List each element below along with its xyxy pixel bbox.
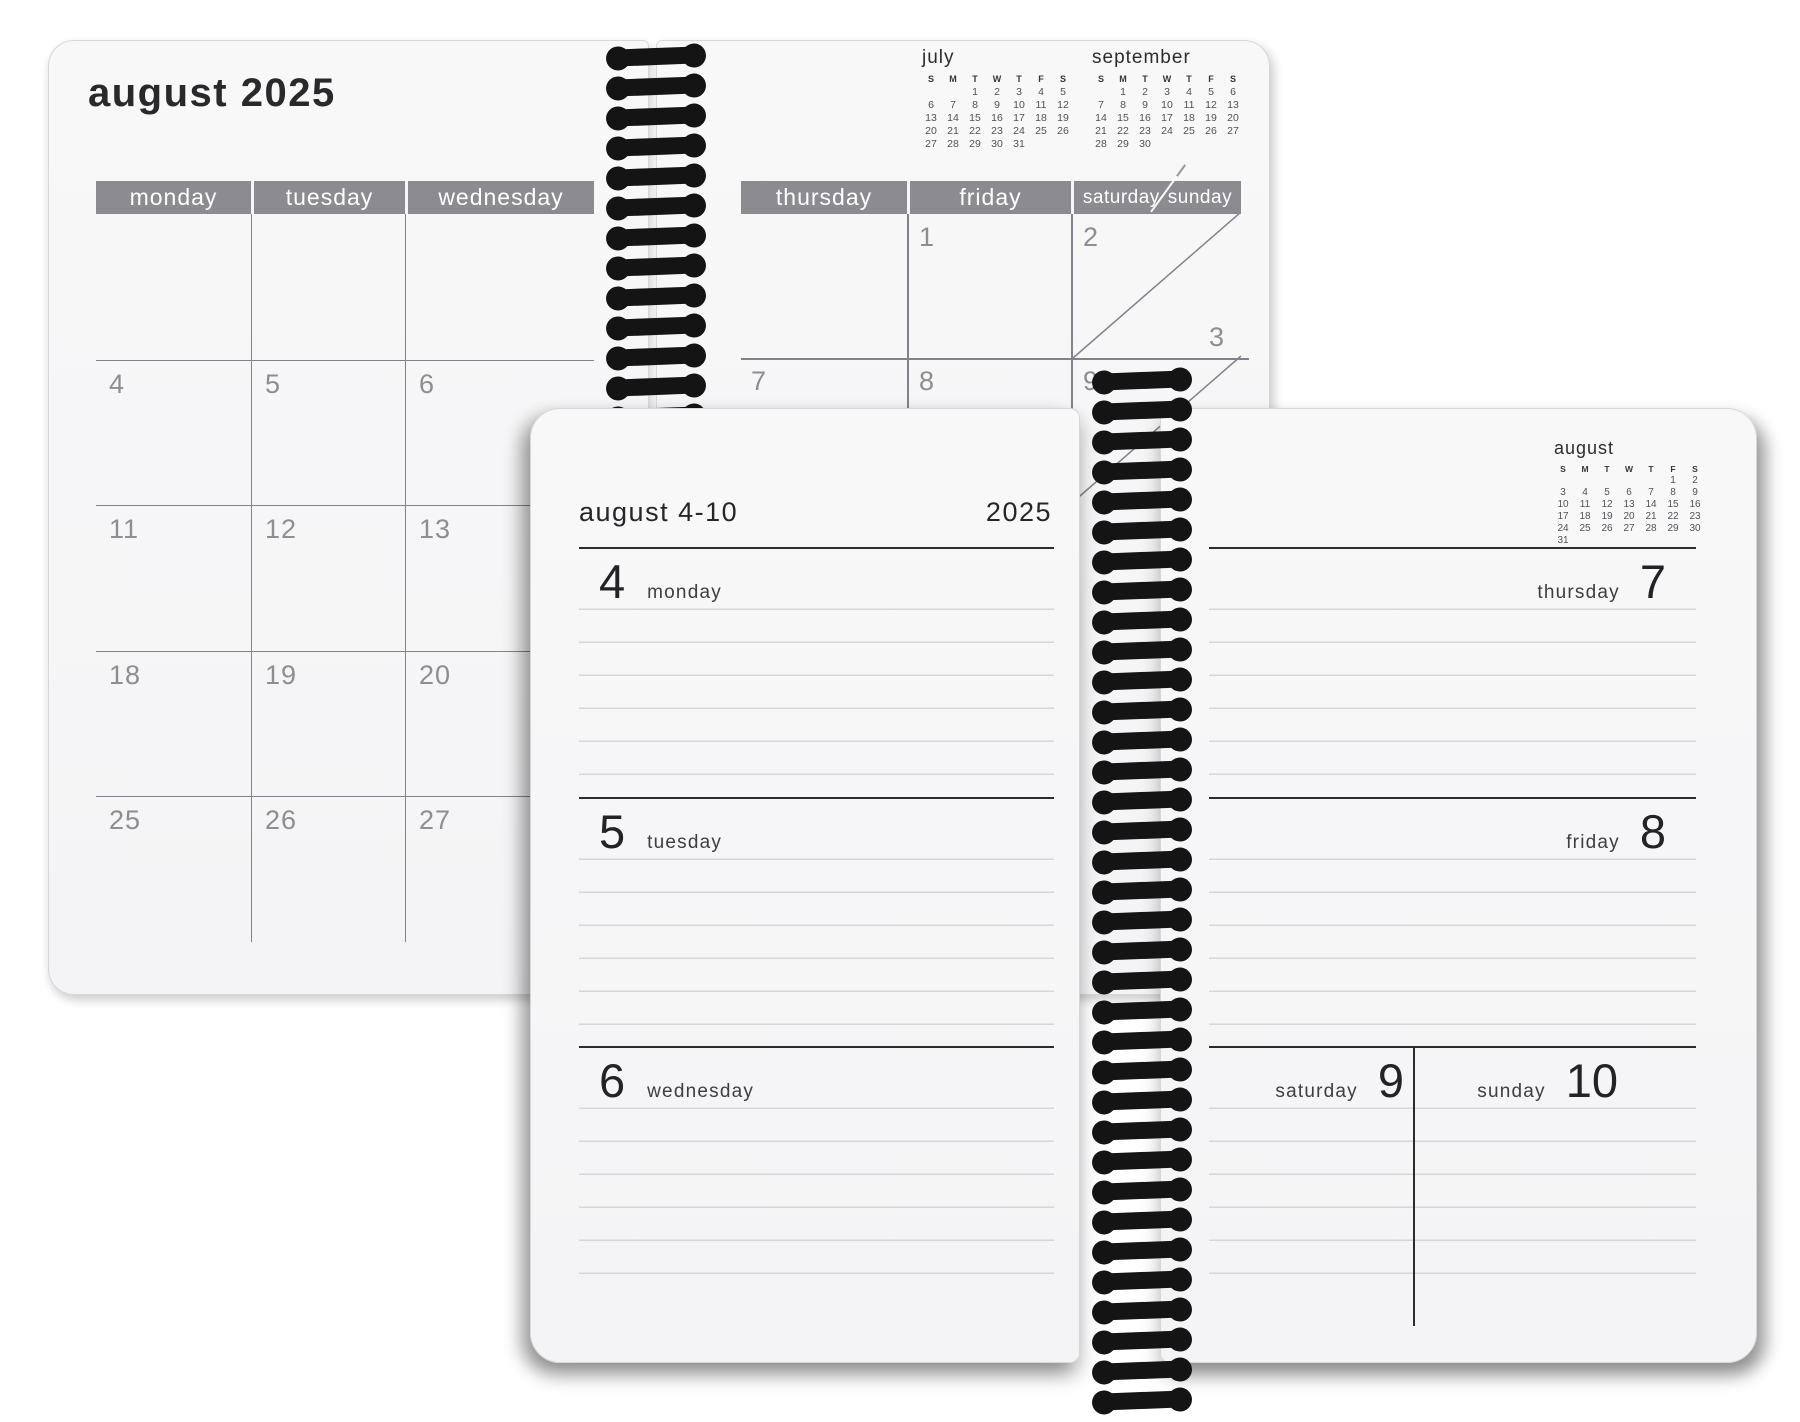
mini-date-cell: 3 <box>1156 86 1178 99</box>
mini-date-cell: 25 <box>1178 125 1200 138</box>
mini-date-cell: 8 <box>1112 99 1134 112</box>
mini-date-cell <box>1222 138 1244 151</box>
mini-date-cell: 16 <box>986 112 1008 125</box>
mini-date-cell: 18 <box>1178 112 1200 125</box>
spiral-coil <box>1096 670 1189 691</box>
month-date-cell: 7 <box>751 366 767 397</box>
mini-date-cell: 19 <box>1200 112 1222 125</box>
mini-date-cell: 28 <box>1090 138 1112 151</box>
month-date-cell <box>405 214 594 360</box>
mini-date-cell: 12 <box>1052 99 1074 112</box>
day-number: 6 <box>599 1053 625 1108</box>
day-heading: saturday 9 <box>1275 1053 1404 1108</box>
mini-date-cell <box>1200 138 1222 151</box>
month-date-cell: 25 <box>96 797 251 942</box>
day-heading: thursday 7 <box>1537 554 1666 609</box>
mini-date-cell <box>942 86 964 99</box>
mini-calendar-title: september <box>1092 47 1244 69</box>
spiral-coil <box>1096 910 1189 931</box>
monthly-title: august 2025 <box>88 71 336 116</box>
mini-date-cell: 15 <box>1112 112 1134 125</box>
mini-day-letter: T <box>1134 73 1156 86</box>
weekend-headings: saturday 9 sunday 10 <box>1209 1048 1696 1108</box>
mini-date-cell: 29 <box>964 138 986 151</box>
monthly-grid-left: mondaytuesdaywednesday 456 111213 181920… <box>96 181 594 942</box>
mini-date-cell: 24 <box>1008 125 1030 138</box>
mini-date-cell: 20 <box>1222 112 1244 125</box>
spiral-coil <box>1096 1210 1189 1231</box>
day-number: 10 <box>1566 1053 1618 1108</box>
spiral-coil <box>1096 520 1189 541</box>
day-number: 7 <box>1640 554 1666 609</box>
spiral-coil <box>1096 790 1189 811</box>
weekday-header-cell: tuesday <box>251 181 405 214</box>
month-row: 252627 <box>96 796 594 942</box>
day-label: tuesday <box>647 832 722 854</box>
mini-date-cell <box>1030 138 1052 151</box>
spiral-coil <box>1096 1360 1189 1381</box>
month-date-cell <box>96 214 251 360</box>
spiral-coil <box>1096 760 1189 781</box>
spiral-coil <box>1096 1330 1189 1351</box>
spiral-coil <box>1096 610 1189 631</box>
spiral-coil <box>1096 1000 1189 1021</box>
spiral-coil <box>1096 1090 1189 1111</box>
spiral-coil <box>1096 1390 1189 1411</box>
day-number: 8 <box>1640 804 1666 859</box>
spiral-binding-weekly <box>1096 372 1188 1422</box>
day-label: sunday <box>1477 1081 1545 1103</box>
month-row: 111213 <box>96 505 594 651</box>
spiral-coil <box>610 346 703 367</box>
mini-date-cell: 13 <box>1222 99 1244 112</box>
mini-date-cell: 22 <box>964 125 986 138</box>
mini-date-cell: 9 <box>986 99 1008 112</box>
month-date-cell <box>251 214 405 360</box>
spiral-coil <box>1096 850 1189 871</box>
mini-date-cell: 27 <box>1222 125 1244 138</box>
mini-date-cell: 5 <box>1200 86 1222 99</box>
mini-date-cell: 13 <box>920 112 942 125</box>
mini-date-cell: 17 <box>1156 112 1178 125</box>
spiral-coil <box>610 136 703 157</box>
day-label: monday <box>647 582 722 604</box>
weekend-section: saturday 9 sunday 10 <box>1209 1046 1696 1274</box>
spiral-coil <box>1096 1030 1189 1051</box>
mini-day-letter: M <box>1112 73 1134 86</box>
weekday-header-cell: thursday <box>741 181 907 214</box>
mini-date-cell: 10 <box>1008 99 1030 112</box>
mini-date-cell: 3 <box>1008 86 1030 99</box>
spiral-coil <box>610 106 703 127</box>
mini-date-cell: 28 <box>942 138 964 151</box>
month-date-cell: 2 <box>1083 222 1099 253</box>
mini-calendar-september: september SMTWTFS 123456 78910111213 141… <box>1090 47 1244 151</box>
planner-photo: august 2025 mondaytuesdaywednesday 456 1… <box>0 0 1800 1414</box>
weekday-header-cell: friday <box>907 181 1071 214</box>
mini-calendar-july: july SMTWTFS 12345 6789101112 1314151617… <box>920 47 1074 151</box>
weekday-header-band: mondaytuesdaywednesday <box>96 181 594 214</box>
mini-date-cell: 21 <box>1090 125 1112 138</box>
weekday-header-band: thursdayfriday saturday sunday <box>741 181 1241 214</box>
mini-date-cell: 9 <box>1134 99 1156 112</box>
day-number: 4 <box>599 554 625 609</box>
spiral-coil <box>1096 1180 1189 1201</box>
mini-date-cell: 31 <box>1008 138 1030 151</box>
mini-date-cell: 26 <box>1200 125 1222 138</box>
mini-date-cell: 16 <box>1134 112 1156 125</box>
month-date-cell: 1 <box>919 222 935 253</box>
spiral-coil <box>1096 1300 1189 1321</box>
day-label: wednesday <box>647 1081 754 1103</box>
mini-date-cell: 11 <box>1178 99 1200 112</box>
day-label: saturday <box>1275 1081 1357 1103</box>
mini-date-cell: 12 <box>1200 99 1222 112</box>
mini-date-cell: 15 <box>964 112 986 125</box>
spiral-coil <box>610 256 703 277</box>
day-heading: 4 monday <box>599 554 722 609</box>
spiral-coil <box>1096 1120 1189 1141</box>
day-section: thursday 7 <box>1209 547 1696 775</box>
month-row: 181920 <box>96 651 594 797</box>
weekly-day-sections: 4 monday 5 tuesday 6 wednesday <box>531 409 1079 1362</box>
mini-day-letter: S <box>1052 73 1074 86</box>
mini-date-cell: 30 <box>1134 138 1156 151</box>
day-label: thursday <box>1537 582 1619 604</box>
spiral-coil <box>1096 370 1189 391</box>
spiral-coil <box>1096 970 1189 991</box>
month-date-cell: 11 <box>96 506 251 651</box>
spiral-coil <box>610 166 703 187</box>
spiral-coil <box>610 196 703 217</box>
mini-date-cell: 8 <box>964 99 986 112</box>
spiral-coil <box>1096 430 1189 451</box>
mini-date-cell: 7 <box>942 99 964 112</box>
weekly-right-page: august SMTWTFS 12 3456789 10111213141516… <box>1160 408 1757 1363</box>
mini-calendar-grid: SMTWTFS 12345 6789101112 13141516171819 … <box>920 73 1074 151</box>
spiral-coil <box>1096 820 1189 841</box>
mini-date-cell: 25 <box>1030 125 1052 138</box>
day-heading: 6 wednesday <box>599 1053 754 1108</box>
mini-calendar-grid: SMTWTFS 123456 78910111213 1415161718192… <box>1090 73 1244 151</box>
weekly-left-page: august 4-10 2025 4 monday 5 tuesday 6 we… <box>530 408 1080 1363</box>
mini-day-letter: S <box>1090 73 1112 86</box>
day-section: 4 monday <box>579 547 1054 775</box>
mini-date-cell: 1 <box>1112 86 1134 99</box>
mini-day-letter: S <box>920 73 942 86</box>
spiral-coil <box>1096 490 1189 511</box>
mini-date-cell: 6 <box>920 99 942 112</box>
month-date-cell: 3 <box>1209 322 1225 353</box>
spiral-coil <box>1096 640 1189 661</box>
mini-day-letter: T <box>1008 73 1030 86</box>
month-date-cell: 19 <box>251 652 405 797</box>
mini-date-cell: 29 <box>1112 138 1134 151</box>
month-date-cell: 12 <box>251 506 405 651</box>
mini-date-cell: 26 <box>1052 125 1074 138</box>
spiral-coil <box>1096 460 1189 481</box>
mini-date-cell <box>1156 138 1178 151</box>
mini-date-cell: 19 <box>1052 112 1074 125</box>
month-date-cell: 18 <box>96 652 251 797</box>
mini-date-cell: 2 <box>986 86 1008 99</box>
mini-date-cell: 1 <box>964 86 986 99</box>
spiral-coil <box>610 226 703 247</box>
day-number: 5 <box>599 804 625 859</box>
spiral-coil <box>610 286 703 307</box>
mini-date-cell: 17 <box>1008 112 1030 125</box>
day-heading: sunday 10 <box>1477 1053 1618 1108</box>
weekday-header-cell: monday <box>96 181 251 214</box>
month-row <box>96 214 594 360</box>
spiral-coil <box>1096 400 1189 421</box>
day-section: friday 8 <box>1209 797 1696 1025</box>
month-date-cell: 26 <box>251 797 405 942</box>
mini-date-cell: 4 <box>1178 86 1200 99</box>
mini-day-letter: F <box>1030 73 1052 86</box>
spiral-coil <box>1096 580 1189 601</box>
spiral-binding-monthly <box>610 48 702 438</box>
mini-date-cell: 14 <box>942 112 964 125</box>
spiral-coil <box>1096 1240 1189 1261</box>
mini-date-cell <box>1178 138 1200 151</box>
mini-date-cell: 23 <box>1134 125 1156 138</box>
weekend-header-cell: saturday sunday <box>1071 181 1241 214</box>
mini-date-cell: 22 <box>1112 125 1134 138</box>
mini-day-letter: W <box>986 73 1008 86</box>
mini-date-cell: 23 <box>986 125 1008 138</box>
mini-date-cell: 24 <box>1156 125 1178 138</box>
mini-date-cell: 10 <box>1156 99 1178 112</box>
mini-date-cell: 11 <box>1030 99 1052 112</box>
day-section: 5 tuesday <box>579 797 1054 1025</box>
mini-day-letter: S <box>1222 73 1244 86</box>
mini-date-cell: 6 <box>1222 86 1244 99</box>
mini-calendar-title: july <box>922 47 1074 69</box>
month-rows: 456 111213 181920 252627 <box>96 214 594 942</box>
mini-day-letter: W <box>1156 73 1178 86</box>
mini-date-cell: 27 <box>920 138 942 151</box>
spiral-coil <box>1096 550 1189 571</box>
sunday-header-label: sunday <box>1168 187 1232 209</box>
mini-date-cell: 5 <box>1052 86 1074 99</box>
spiral-coil <box>610 376 703 397</box>
spiral-coil <box>610 76 703 97</box>
mini-date-cell: 18 <box>1030 112 1052 125</box>
mini-date-cell: 20 <box>920 125 942 138</box>
mini-day-letter: M <box>942 73 964 86</box>
spiral-coil <box>1096 700 1189 721</box>
spiral-coil <box>1096 730 1189 751</box>
month-date-cell: 8 <box>919 366 935 397</box>
month-date-cell: 4 <box>96 361 251 506</box>
mini-date-cell: 14 <box>1090 112 1112 125</box>
mini-date-cell: 30 <box>986 138 1008 151</box>
day-label: friday <box>1566 832 1620 854</box>
mini-date-cell <box>1090 86 1112 99</box>
mini-date-cell: 4 <box>1030 86 1052 99</box>
spiral-coil <box>610 46 703 67</box>
day-heading: 5 tuesday <box>599 804 722 859</box>
day-section: 6 wednesday <box>579 1046 1054 1274</box>
mini-day-letter: T <box>1178 73 1200 86</box>
month-row: 456 <box>96 360 594 506</box>
mini-date-cell <box>1052 138 1074 151</box>
spiral-coil <box>1096 880 1189 901</box>
spiral-coil <box>1096 940 1189 961</box>
mini-day-letter: T <box>964 73 986 86</box>
mini-date-cell: 7 <box>1090 99 1112 112</box>
saturday-header-label: saturday <box>1083 187 1160 209</box>
spiral-coil <box>610 316 703 337</box>
mini-date-cell <box>920 86 942 99</box>
month-date-cell: 5 <box>251 361 405 506</box>
mini-date-cell: 2 <box>1134 86 1156 99</box>
spiral-coil <box>1096 1060 1189 1081</box>
day-number: 9 <box>1378 1053 1404 1108</box>
spiral-coil <box>1096 1270 1189 1291</box>
mini-day-letter: F <box>1200 73 1222 86</box>
weekend-divider <box>1413 1048 1415 1326</box>
spiral-coil <box>1096 1150 1189 1171</box>
mini-date-cell: 21 <box>942 125 964 138</box>
weekday-header-cell: wednesday <box>405 181 594 214</box>
day-heading: friday 8 <box>1566 804 1666 859</box>
